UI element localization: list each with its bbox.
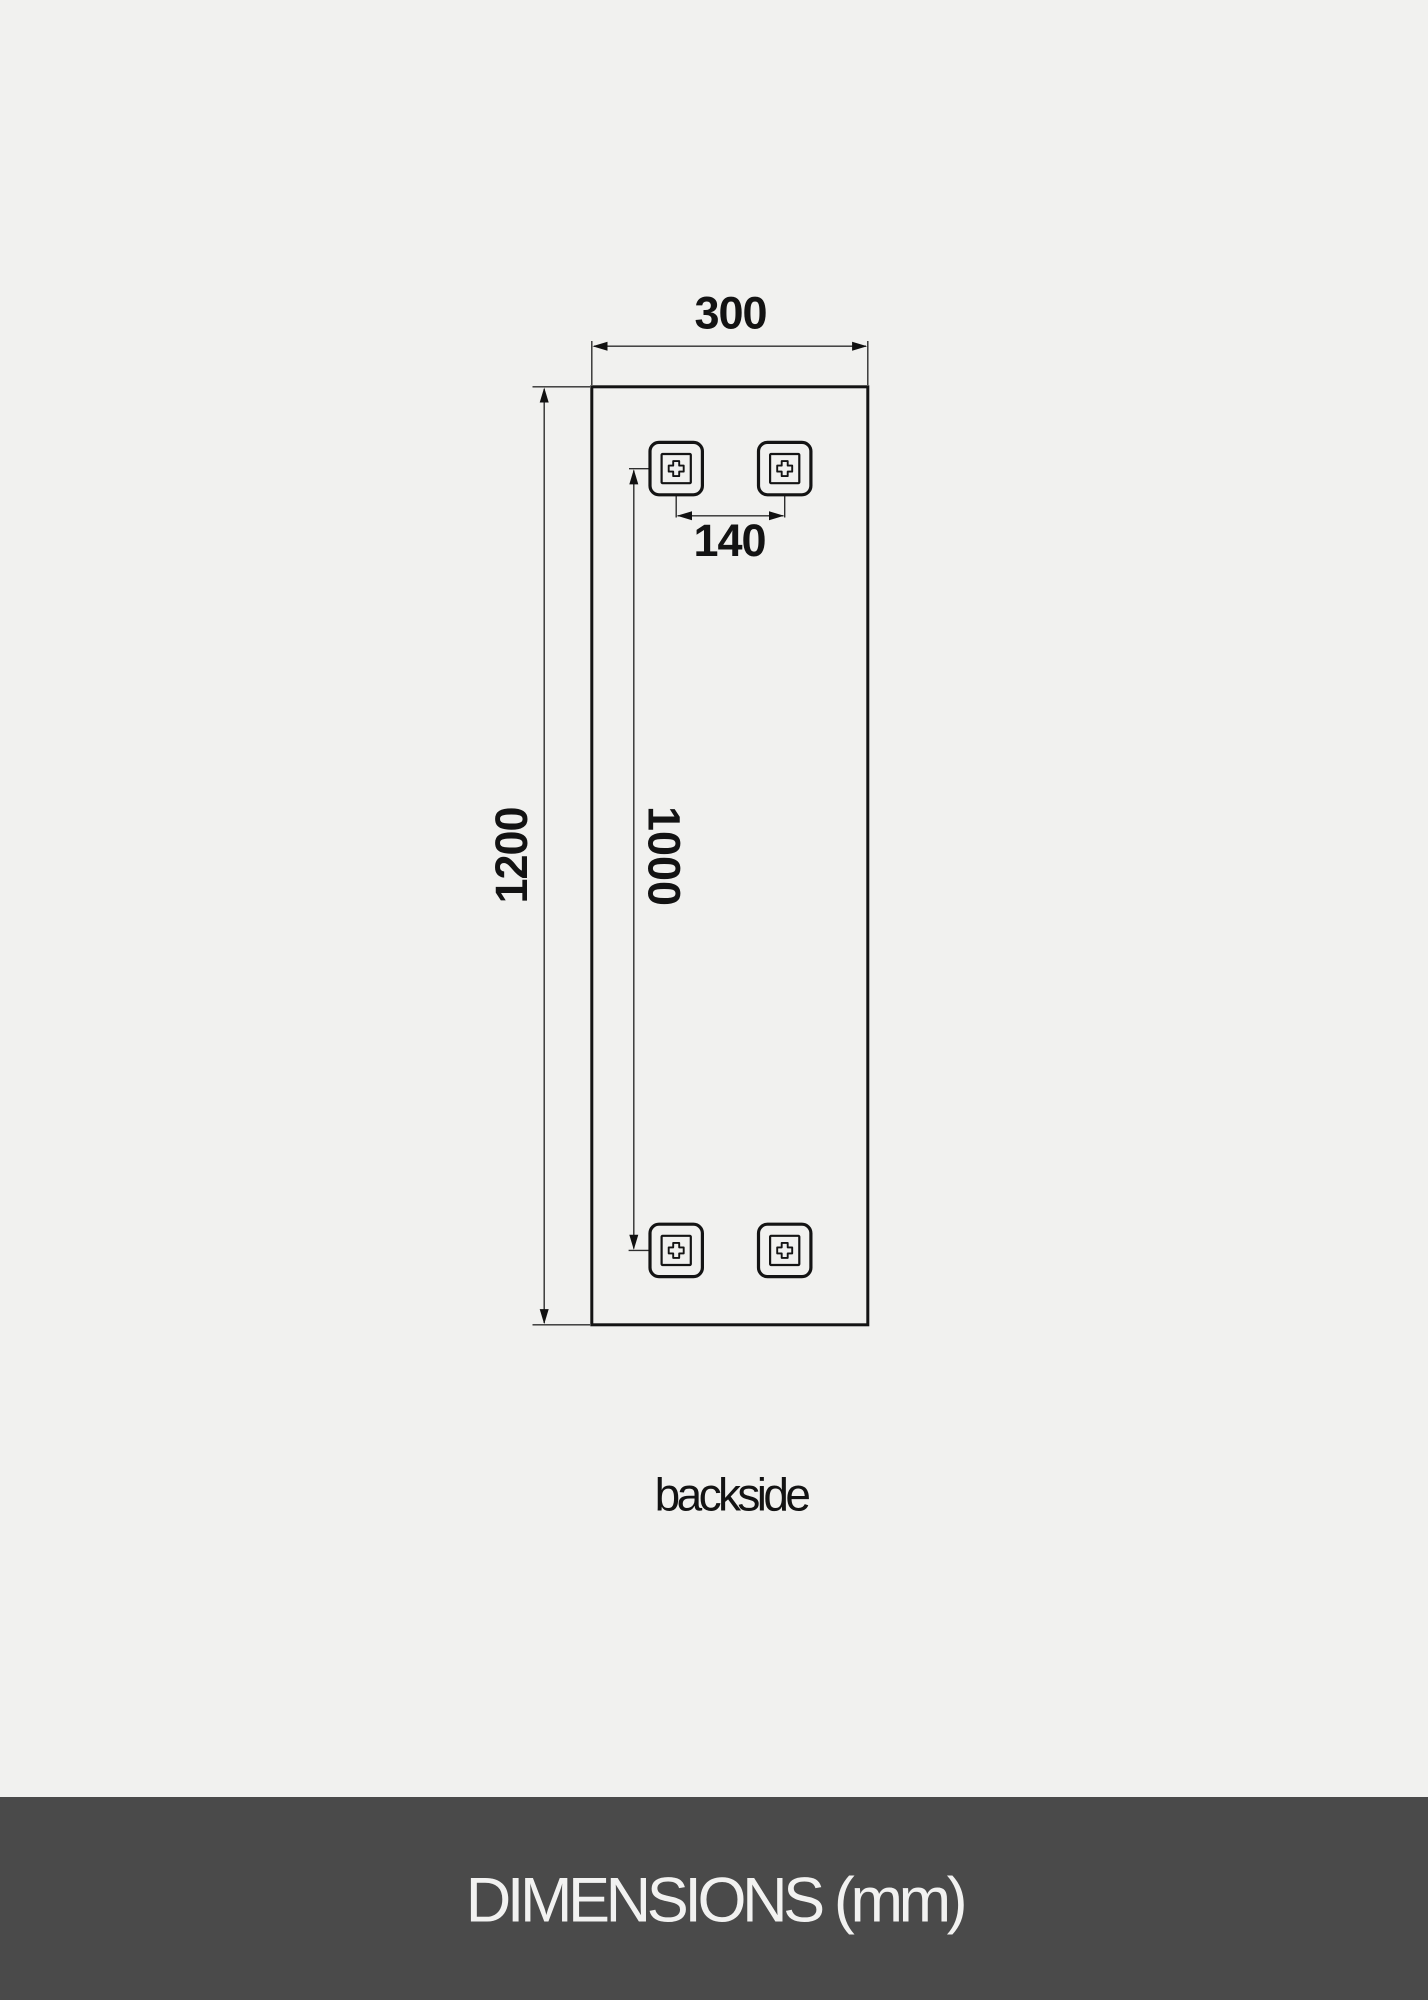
svg-text:1000: 1000 xyxy=(639,806,690,906)
svg-text:300: 300 xyxy=(694,288,766,339)
svg-text:backside: backside xyxy=(655,1469,810,1521)
svg-text:DIMENSIONS (mm): DIMENSIONS (mm) xyxy=(466,1866,965,1936)
svg-text:1200: 1200 xyxy=(486,807,537,903)
svg-text:140: 140 xyxy=(693,515,765,566)
